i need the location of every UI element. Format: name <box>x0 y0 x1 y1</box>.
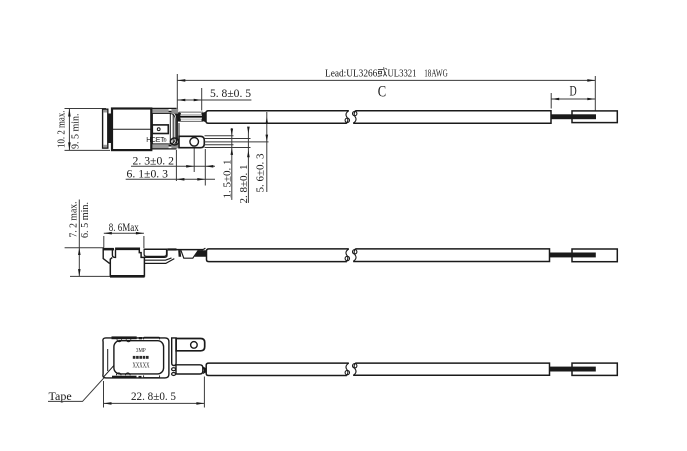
svg-text:18AWG: 18AWG <box>424 68 448 79</box>
svg-text:D: D <box>570 84 577 100</box>
svg-text:10. 2 max.: 10. 2 max. <box>57 111 68 149</box>
svg-text:C: C <box>378 84 386 101</box>
svg-text:5. 8±0. 5: 5. 8±0. 5 <box>210 88 251 100</box>
svg-text:7. 2 max.: 7. 2 max. <box>69 202 80 238</box>
svg-text:6. 1±0. 3: 6. 1±0. 3 <box>127 168 169 180</box>
svg-text:2. 3±0. 2: 2. 3±0. 2 <box>133 155 175 167</box>
svg-text:2. 8±0. 1: 2. 8±0. 1 <box>238 165 250 204</box>
svg-text:8. 6Max: 8. 6Max <box>109 222 139 234</box>
svg-text:®: ® <box>163 137 167 144</box>
svg-text:6. 5 min.: 6. 5 min. <box>80 202 91 238</box>
svg-text:Lead:UL3266: Lead:UL3266 <box>325 68 377 79</box>
svg-text:5. 6±0. 3: 5. 6±0. 3 <box>255 153 267 192</box>
svg-text:XXXXX: XXXXX <box>133 361 150 369</box>
svg-text:UL3321: UL3321 <box>388 68 417 79</box>
svg-text:3MP: 3MP <box>136 347 146 354</box>
svg-text:1. 5±0. 1: 1. 5±0. 1 <box>221 160 233 199</box>
svg-text:9. 5 min.: 9. 5 min. <box>70 114 81 150</box>
svg-text:22. 8±0. 5: 22. 8±0. 5 <box>131 389 176 403</box>
